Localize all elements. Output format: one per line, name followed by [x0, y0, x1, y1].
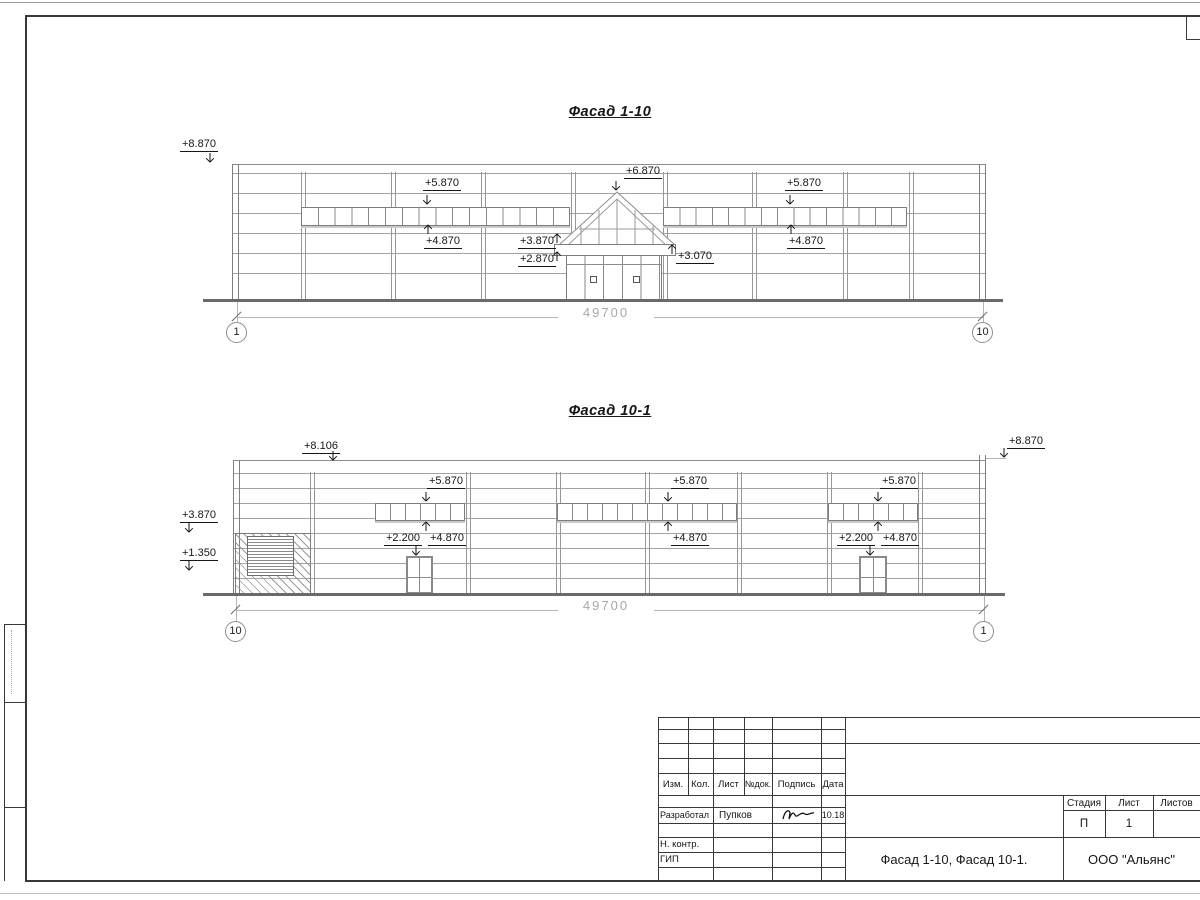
elevation-arrow-down	[420, 492, 432, 502]
pilaster	[843, 172, 848, 299]
elevation-mark-unit-bottom: +1.350	[180, 548, 218, 561]
date-value: 10.18	[821, 807, 845, 823]
rev-header-kol: Кол.	[688, 774, 713, 794]
parapet-leader-line	[986, 458, 1006, 459]
axis-circle-1: 1	[226, 322, 247, 343]
developer-name: Пупков	[719, 807, 771, 823]
axis-circle-10: 10	[972, 322, 993, 343]
rev-header-data: Дата	[821, 774, 845, 794]
pilaster	[737, 472, 742, 593]
role-gip: ГИП	[660, 852, 714, 867]
sheet-value: 1	[1105, 810, 1153, 837]
elevation-arrow-down	[183, 523, 195, 533]
drawing-sheet: Фасад 1-10	[0, 0, 1200, 900]
rev-header-podpis: Подпись	[772, 774, 821, 794]
paper-edge-top	[0, 2, 1200, 3]
titleblock-line	[658, 743, 1200, 744]
elevation-mark-s3-bottom: +4.870	[881, 533, 919, 546]
entrance-glazing	[566, 256, 662, 299]
elevation-arrow-down	[998, 448, 1010, 458]
elevation-arrow-down	[327, 451, 339, 461]
titleblock-line	[658, 867, 845, 868]
door-handle	[590, 276, 597, 283]
pilaster	[645, 472, 650, 593]
stamp-column-line	[4, 702, 25, 703]
stamp-column-border	[4, 624, 5, 881]
elevation-mark-win2-bottom: +4.870	[787, 236, 825, 249]
rev-header-izm: Изм.	[658, 774, 688, 794]
elevation-mark-door2: +2.200	[837, 533, 875, 546]
titleblock-line	[658, 729, 845, 730]
elevation-mark-win1-top: +5.870	[423, 178, 461, 191]
extension-line	[237, 302, 238, 322]
elevation-arrow-down	[662, 492, 674, 502]
ground-line	[203, 593, 1005, 596]
elevation-arrow-down	[610, 181, 622, 191]
pilaster	[481, 172, 486, 299]
overall-dimension: 49700	[558, 598, 654, 613]
entrance-transom-line	[566, 264, 662, 265]
overall-dimension: 49700	[558, 305, 654, 320]
elevation-arrow-down	[183, 561, 195, 571]
elevation-arrow-down	[204, 153, 216, 163]
pilaster	[909, 172, 914, 299]
rev-header-list: Лист	[713, 774, 744, 794]
corner-reference-box	[1186, 16, 1200, 40]
rev-header-ndok: №док.	[744, 774, 772, 794]
pilaster	[827, 472, 832, 593]
elevation-mark-s2-top: +5.870	[671, 476, 709, 489]
elevation-mark-parapet-right: +8.870	[1007, 436, 1045, 449]
elevation-mark-canopy-right: +3.070	[676, 251, 714, 264]
pilaster	[391, 172, 396, 299]
pilaster	[466, 472, 471, 593]
elevation-mark-entry-top: +6.870	[624, 166, 662, 179]
elevation-mark-unit-top: +3.870	[180, 510, 218, 523]
window-strip-1	[375, 503, 465, 521]
elevation-arrow-down	[421, 195, 433, 205]
document-name: Фасад 1-10, Фасад 10-1.	[845, 837, 1063, 881]
titleblock-line	[772, 717, 773, 881]
axis-circle-1: 1	[973, 621, 994, 642]
elevation-mark-win1-bottom: +4.870	[424, 236, 462, 249]
elevation-arrow-up	[666, 244, 678, 254]
elevation-arrow-up	[551, 251, 563, 261]
sheets-header: Листов	[1153, 796, 1200, 810]
axis-circle-10: 10	[225, 621, 246, 642]
facade-1-left-corner	[232, 164, 239, 299]
elevation-arrow-down	[784, 195, 796, 205]
facade-1-right-corner	[979, 164, 986, 299]
pilaster	[752, 172, 757, 299]
entrance-canopy	[554, 244, 676, 256]
elevation-arrow-up	[422, 224, 434, 234]
door-handle	[633, 276, 640, 283]
elevation-arrow-up	[872, 521, 884, 531]
window-strip-left	[301, 207, 570, 226]
pilaster	[301, 172, 306, 299]
facade-2-title: Фасад 10-1	[530, 403, 690, 419]
service-door-2	[859, 556, 887, 594]
extension-line	[983, 302, 984, 322]
elevation-arrow-up	[420, 521, 432, 531]
ground-line	[203, 299, 1003, 302]
frame-left	[25, 15, 27, 881]
service-door-1	[406, 556, 433, 594]
titleblock-line	[821, 717, 822, 881]
vent-louver-grille	[247, 536, 294, 576]
elevation-arrow-down	[864, 546, 876, 556]
sheet-header: Лист	[1105, 796, 1153, 810]
role-ncontr: Н. контр.	[660, 837, 714, 852]
titleblock-line	[658, 717, 1200, 718]
elevation-mark-s1-bottom: +4.870	[428, 533, 466, 546]
stamp-column-line	[4, 624, 25, 625]
stamp-column-line	[4, 807, 25, 808]
pilaster	[556, 472, 561, 593]
elevation-mark-parapet: +8.870	[180, 139, 218, 152]
frame-top	[25, 15, 1200, 17]
stamp-column-vertical-caption	[11, 630, 12, 694]
elevation-mark-s2-bottom: +4.870	[671, 533, 709, 546]
titleblock-line	[658, 758, 845, 759]
window-strip-2	[557, 503, 737, 521]
facade-1-title: Фасад 1-10	[530, 104, 690, 120]
stage-value: П	[1063, 810, 1105, 837]
organization-name: ООО "Альянс"	[1063, 837, 1200, 881]
sheets-value	[1153, 810, 1200, 837]
elevation-arrow-up	[785, 224, 797, 234]
elevation-arrow-up	[662, 521, 674, 531]
elevation-mark-s1-top: +5.870	[427, 476, 465, 489]
signature	[779, 806, 817, 823]
elevation-arrow-down	[872, 492, 884, 502]
titleblock-line	[658, 717, 659, 881]
paper-edge-bottom	[0, 893, 1200, 894]
role-developed: Разработал	[660, 807, 714, 823]
stage-header: Стадия	[1063, 796, 1105, 810]
titleblock-line	[658, 823, 845, 824]
entrance-gable	[554, 188, 678, 246]
window-strip-3	[828, 503, 918, 521]
elevation-arrow-up	[551, 233, 563, 243]
elevation-mark-door1: +2.200	[384, 533, 422, 546]
elevation-mark-s3-top: +5.870	[880, 476, 918, 489]
elevation-mark-win2-top: +5.870	[785, 178, 823, 191]
facade-2-right-corner	[979, 455, 986, 593]
elevation-arrow-down	[410, 546, 422, 556]
